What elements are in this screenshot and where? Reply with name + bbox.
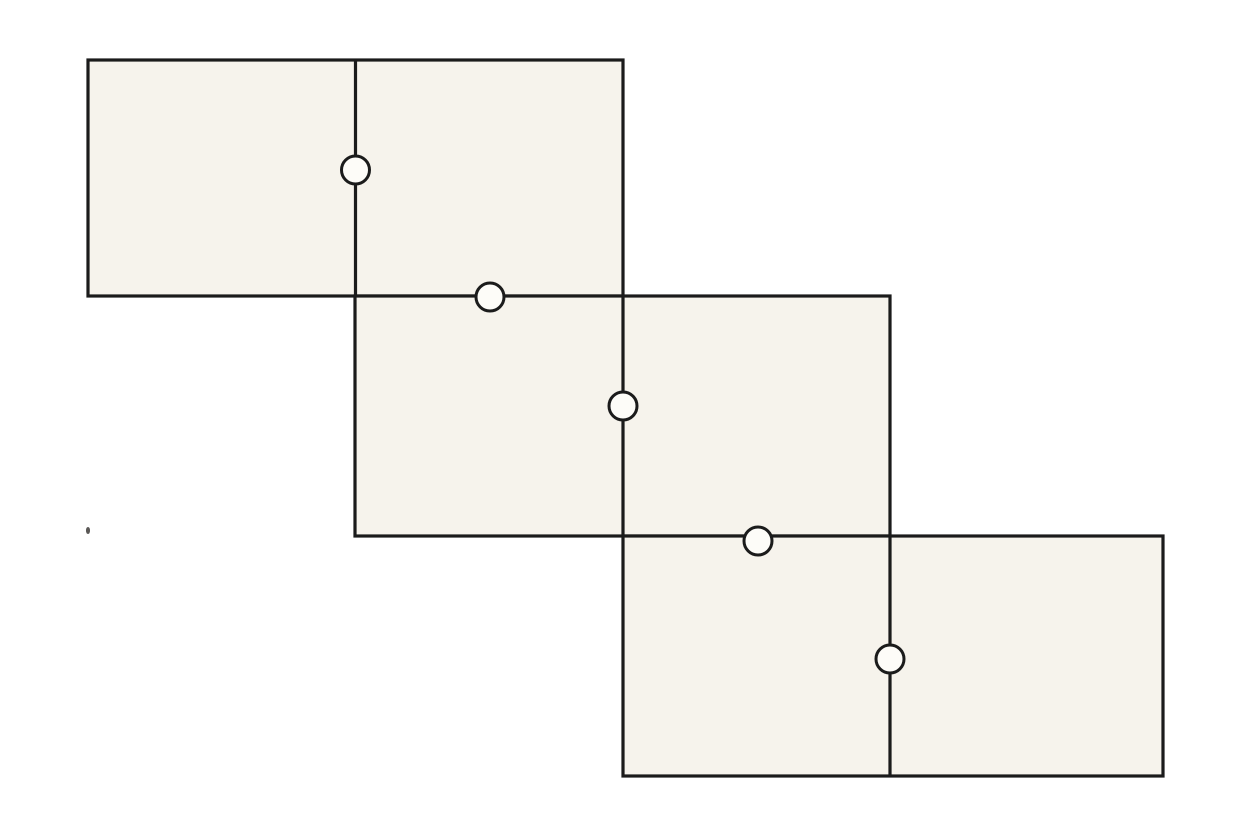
hinge-circle-5: [876, 645, 904, 673]
figure-canvas: [0, 0, 1248, 832]
stray-mark: [86, 527, 90, 534]
hinge-circle-4: [744, 527, 772, 555]
hinge-circle-3: [609, 392, 637, 420]
hinge-circle-2: [476, 283, 504, 311]
hinge-circle-1: [342, 156, 370, 184]
geometry-diagram: [0, 0, 1248, 832]
